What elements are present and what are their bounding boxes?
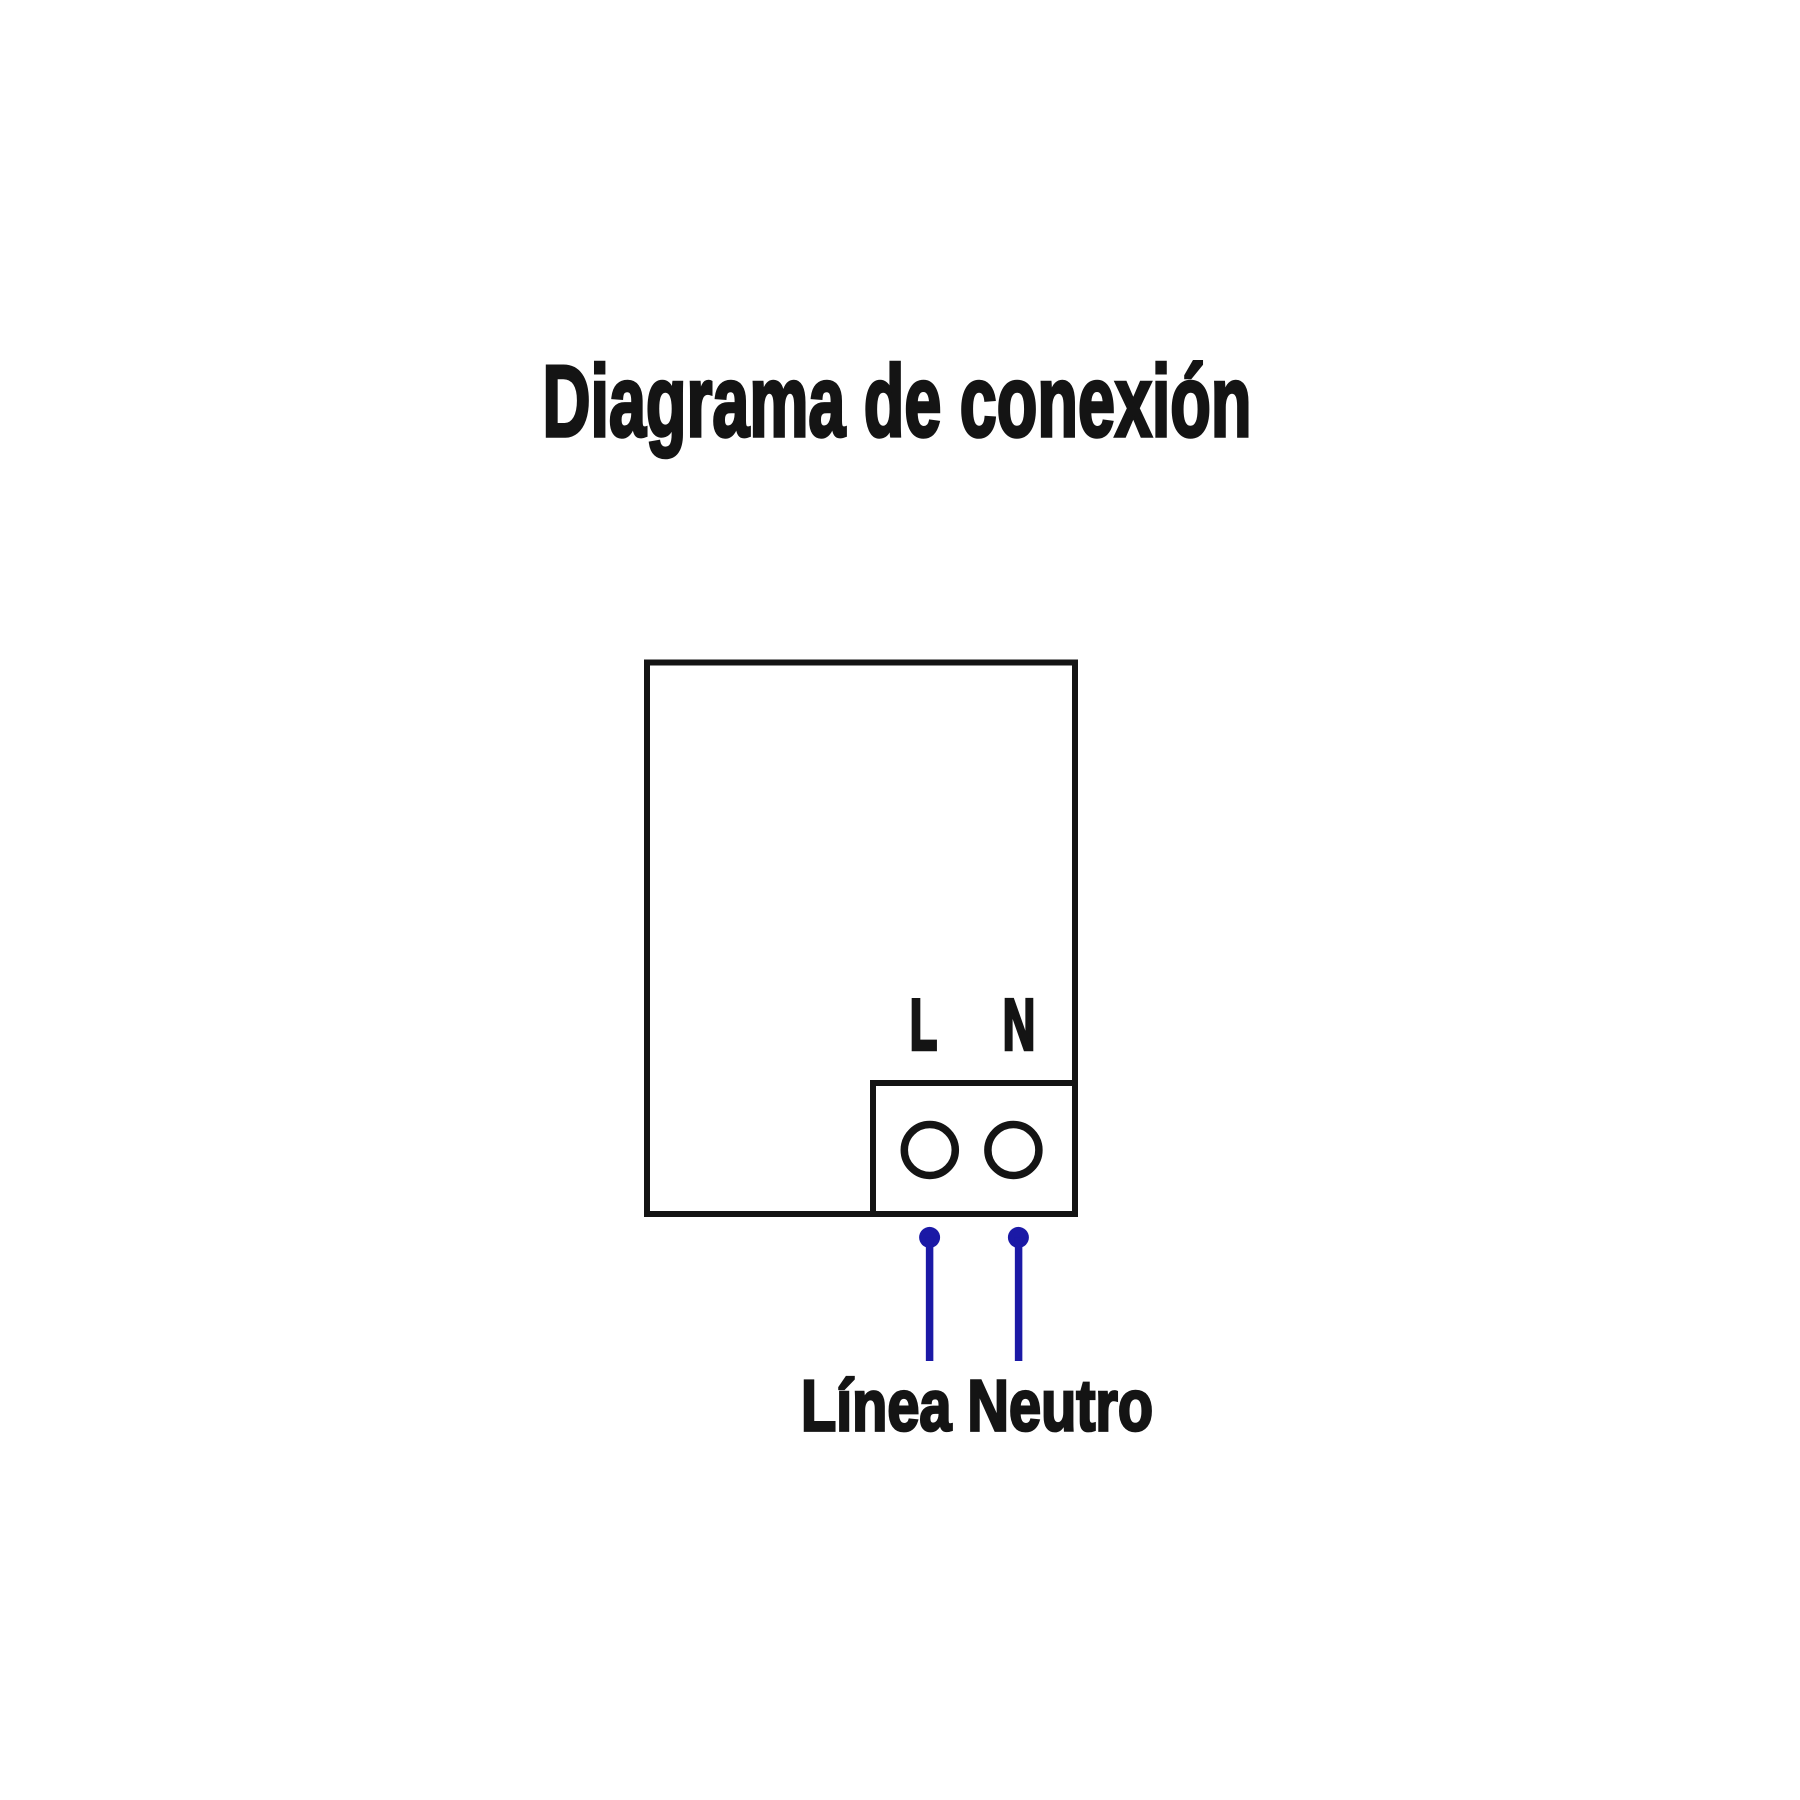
svg-text:Diagrama de conexión: Diagrama de conexión <box>543 346 1252 458</box>
svg-text:L: L <box>910 985 937 1065</box>
svg-text:Línea Neutro: Línea Neutro <box>801 1365 1153 1446</box>
svg-text:N: N <box>1003 985 1035 1065</box>
